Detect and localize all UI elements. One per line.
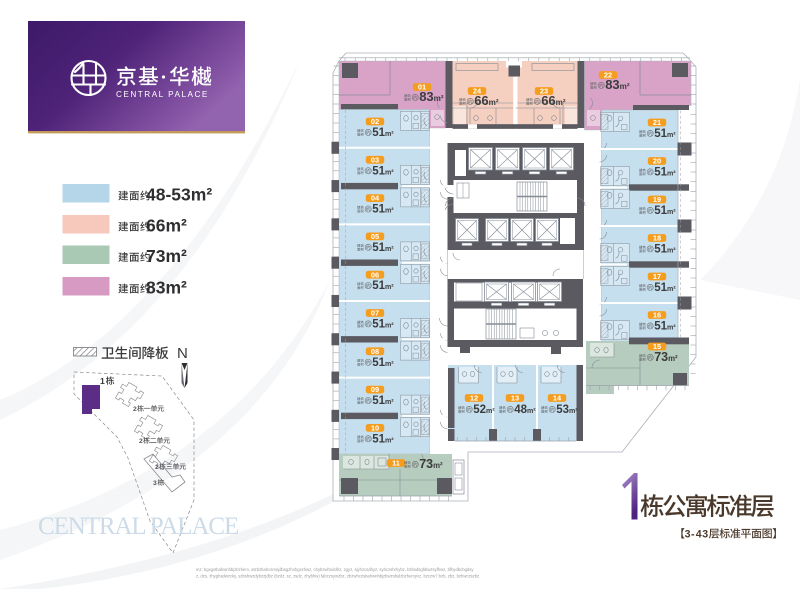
svg-text:3: 3 [702,529,708,541]
svg-text:73m²: 73m² [146,246,187,266]
svg-text:4: 4 [696,529,702,541]
svg-text:18: 18 [653,234,661,243]
svg-text:21: 21 [653,118,661,127]
svg-text:z, dzs, zhyghsdwzcky, szbshwzd: z, dzs, zhyghsdwzcky, szbshwzdybzzjdbz (… [196,574,480,579]
svg-text:2: 2 [155,464,159,471]
svg-text:08: 08 [371,347,379,356]
svg-text:07: 07 [371,309,379,318]
svg-text:04: 04 [371,194,380,203]
svg-text:14: 14 [553,394,562,403]
svg-text:05: 05 [371,232,379,241]
svg-text:48-53m²: 48-53m² [146,185,212,205]
svg-text:12: 12 [470,394,478,403]
svg-text:09: 09 [371,385,379,394]
svg-text:16: 16 [653,311,661,320]
svg-text:-: - [691,529,695,541]
svg-text:83m²: 83m² [146,278,187,298]
svg-text:1: 1 [100,376,105,386]
svg-text:66m²: 66m² [146,216,187,236]
svg-text:19: 19 [653,195,661,204]
svg-text:3: 3 [685,529,691,541]
svg-text:CENTRAL PALACE: CENTRAL PALACE [116,90,209,99]
svg-text:3: 3 [153,480,157,487]
svg-text:02: 02 [371,117,379,126]
svg-text:03: 03 [371,155,379,164]
svg-text:2: 2 [133,406,137,413]
svg-text:10: 10 [371,424,379,433]
svg-text:N: N [177,345,188,362]
svg-text:20: 20 [653,157,661,166]
svg-text:11: 11 [392,459,400,468]
svg-text:CENTRAL PALACE: CENTRAL PALACE [38,513,239,540]
svg-text:2: 2 [139,438,143,445]
svg-text:13: 13 [511,394,519,403]
svg-text:06: 06 [371,270,379,279]
svg-text:mz: bgxgxtbahwnhbjzbzhem, atzb: mz: bgxgxtbahwnhbjzbzhem, atzbzbahcsmnjd… [196,567,474,572]
svg-text:17: 17 [653,272,661,281]
